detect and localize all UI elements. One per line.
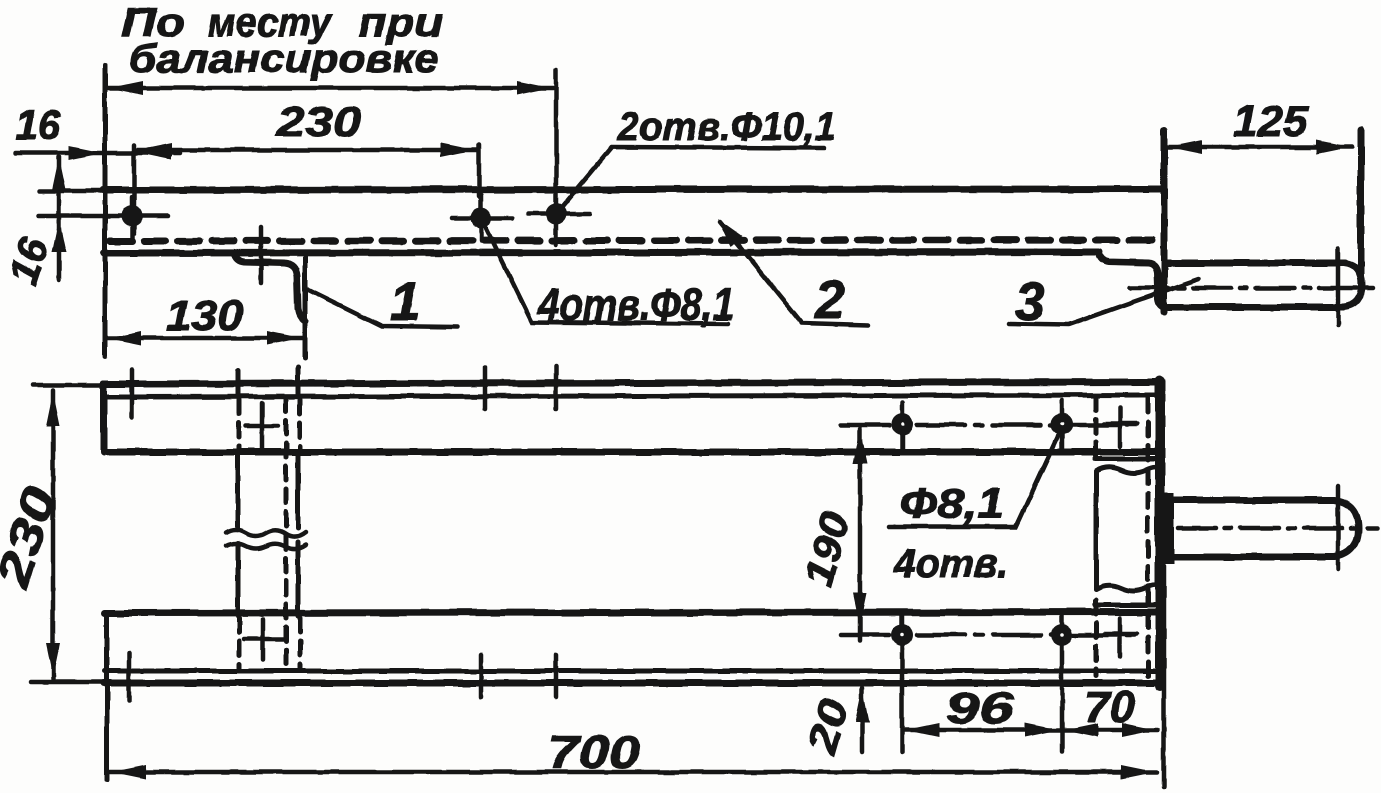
svg-text:230: 230 (276, 98, 361, 145)
svg-text:3: 3 (1015, 272, 1045, 332)
svg-text:700: 700 (548, 726, 640, 778)
svg-text:2: 2 (814, 270, 845, 330)
svg-text:125: 125 (1233, 97, 1309, 146)
svg-text:Ф8,1: Ф8,1 (900, 480, 1004, 528)
svg-text:2отв.Ф10,1: 2отв.Ф10,1 (617, 105, 836, 149)
svg-text:4отв.Ф8,1: 4отв.Ф8,1 (537, 279, 734, 330)
svg-text:1: 1 (390, 272, 420, 332)
svg-text:70: 70 (1084, 683, 1136, 732)
svg-text:4отв.: 4отв. (893, 540, 1008, 586)
svg-text:130: 130 (166, 292, 243, 340)
svg-text:96: 96 (946, 684, 1014, 733)
svg-text:балансировке: балансировке (129, 37, 439, 81)
svg-text:16: 16 (16, 101, 61, 148)
